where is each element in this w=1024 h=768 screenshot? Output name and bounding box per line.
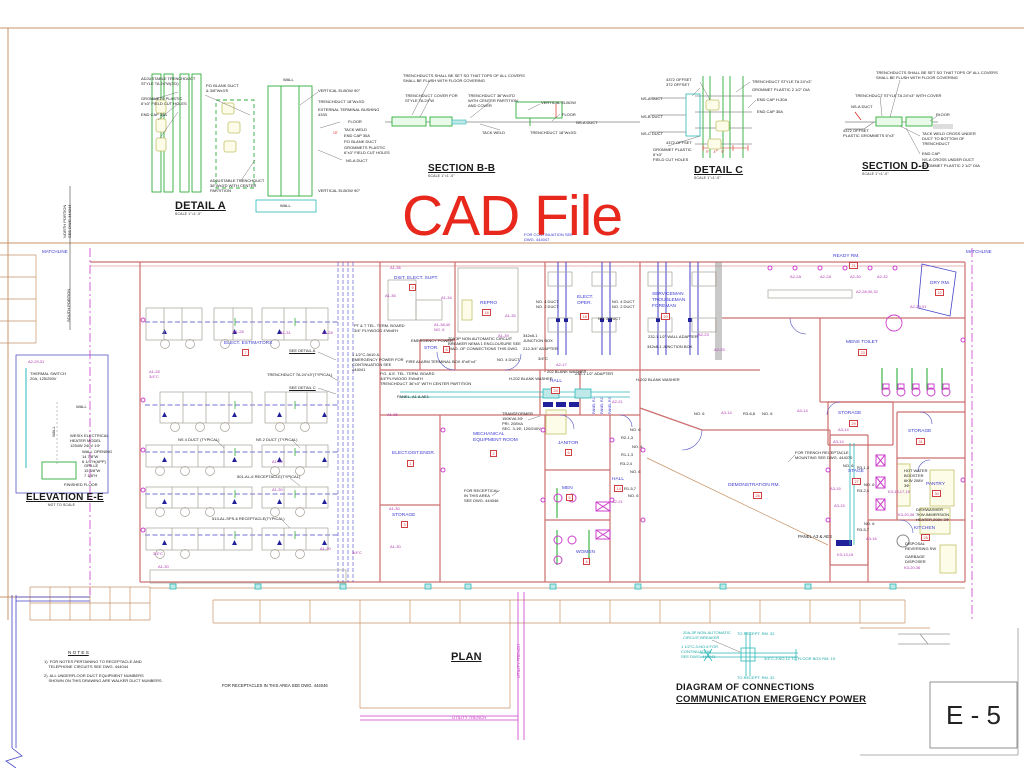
- section-title: DIAGRAM OF CONNECTIONS: [676, 682, 814, 694]
- annotation: GROMMETS PLASTIC 6"x3" FIELD CUT HOLES: [344, 145, 390, 155]
- annotation: GROMMET PLASTIC 6"x3" FIELD CUT HOLES: [653, 147, 692, 162]
- annotation: A3-14: [833, 439, 844, 444]
- annotation: FLOOR: [936, 112, 950, 117]
- room-number-tag: 5: [566, 494, 573, 501]
- annotation: DISHWASHER 7KW-IMMERSION HEATER,208V 3Φ: [916, 507, 949, 522]
- annotation: PANEL R1: [592, 397, 596, 414]
- room-number-tag: 1: [407, 460, 414, 467]
- annotation: NS-B DUCT: [641, 114, 663, 119]
- room-label: MECHANICAL EQUIPMENT ROOM: [473, 432, 518, 444]
- annotation: A1-35: [387, 412, 398, 417]
- section-title: COMMUNICATION EMERGENCY POWER: [676, 694, 866, 706]
- room-number-tag: 9: [409, 284, 416, 291]
- annotation: A1-35: [505, 313, 516, 318]
- annotation: NS 4 DUCT (TYPICAL): [178, 437, 220, 442]
- annotation: GROMMET PLASTIC 2 1/2" DIA: [922, 163, 980, 168]
- annotation: A1-30: [272, 487, 283, 492]
- annotation: END CAP 30A: [344, 133, 370, 138]
- annotation: 1 1/2"C-3#10 & EMERGENCY POWER FOR CONTI…: [352, 352, 404, 372]
- annotation: NS-C DUCT: [641, 131, 663, 136]
- room-label: READY RM.: [833, 254, 860, 260]
- annotation: SEE DETAIL C: [289, 385, 316, 390]
- annotation: A2-23: [698, 332, 709, 337]
- annotation: NO. 6: [762, 411, 772, 416]
- annotation: TRENCHDUCT COVER FOR STYLE TA 24"W: [405, 93, 458, 103]
- annotation: A1-28: [233, 329, 244, 334]
- room-number-tag: 6: [565, 449, 572, 456]
- annotation: TRANSFORMER 150KVA 3Φ PRI. 208VΔ SEC. 3-…: [502, 411, 541, 431]
- annotation: ADJUSTABLE TRENCHDUCT 36"Wx3'D WITH CENT…: [210, 178, 264, 193]
- room-label: MENS TOILET: [846, 340, 878, 346]
- annotation: MATCHLINE: [966, 249, 992, 255]
- annotation: P.G. & E. TEL. TERM. BOARD 3/4"PLYWOOD 3…: [380, 371, 471, 386]
- annotation: A2-25: [714, 347, 725, 352]
- annotation: PANEL, A1 & AE1: [397, 394, 429, 399]
- annotation: 3/4"C-3 NO.12 TO FLOOR BOX RM. 19: [764, 656, 835, 661]
- annotation: A3-14: [838, 427, 849, 432]
- annotation: P.D BLANK DUCT & 3/8"Wx3'S: [206, 83, 239, 93]
- annotation: TRENCHDUCT STYLE TA 24"x3" WITH COVER: [855, 93, 941, 98]
- annotation: A1-31: [280, 330, 291, 335]
- annotation: 513-AL-SPS-6 RECEPTACLE(TYPICAL): [212, 516, 285, 521]
- annotation: VERTICAL ELBOW 90°: [318, 88, 360, 93]
- annotation: TACK WELD CROSS UNDER DUCT TO BOTTOM OF …: [922, 131, 976, 146]
- annotation: GARBAGE DISPOSER: [905, 554, 926, 564]
- annotation: NS 2 DUCT (TYPICAL): [256, 437, 298, 442]
- annotation: A1-38,40 NO. 6: [434, 322, 450, 332]
- annotation: 1) FOR NOTES PERTAINING TO RECEPTACLE AN…: [44, 659, 142, 669]
- annotation: FINISHED FLOOR: [64, 482, 98, 487]
- annotation: END CAP H-30A: [757, 97, 787, 102]
- trench-lines: [26, 200, 896, 676]
- annotation: WESIX ELECTRICAL HEATER MODEL 1254W 240V…: [70, 433, 109, 448]
- annotation: A1-30: [272, 459, 283, 464]
- annotation: A1-28 3/4"C: [149, 369, 160, 379]
- room-label: HALL: [550, 379, 562, 385]
- room-number-tag: 24: [551, 387, 560, 394]
- annotation: FOR TRENCH RECEPTACLE MOUNTING SEE DWG. …: [795, 450, 852, 460]
- annotation: A2-29,31: [910, 304, 926, 309]
- section-title: SCALE 1"=1'-0": [694, 176, 721, 180]
- annotation: NS-A DUCT: [851, 104, 873, 109]
- annotation: H-202 BLANK WASHER: [636, 377, 680, 382]
- room-number-tag: 28: [921, 534, 930, 541]
- room-number-tag: 4: [583, 558, 590, 565]
- section-title: SCALE 1"=1'-0": [862, 172, 889, 176]
- annotation: A3-16: [866, 536, 877, 541]
- annotation: SEE DETAIL A: [289, 348, 315, 353]
- room-number-tag: 23: [858, 349, 867, 356]
- annotation: 4372 OFFSET 372 OFFSET: [666, 77, 692, 87]
- annotation: END CAP 30A: [141, 112, 167, 117]
- annotation: A2-2A: [820, 274, 831, 279]
- room-number-tag: 21: [849, 262, 858, 269]
- annotation: A2-17: [556, 362, 567, 367]
- annotation: 232-1 1/2" WALL ADAPTER: [648, 334, 698, 339]
- annotation: 9" 4" 9": [706, 150, 724, 154]
- room-number-tag: 7: [242, 349, 249, 356]
- annotation: TRENCHDUCTS SHALL BE SET SO THAT TOPS OF…: [403, 73, 525, 83]
- annotation: 1 1/2"C-3-NO.6 FOR CONTINUATION SEE DWG.…: [681, 644, 718, 659]
- section-title: NOT TO SCALE: [48, 503, 75, 507]
- annotation: NS-A DUCT: [641, 96, 663, 101]
- room-label: STORAGE: [908, 429, 931, 435]
- annotation: NORTH PORTION SEE DWG.444044: [62, 205, 72, 238]
- annotation: A3-15: [834, 503, 845, 508]
- annotation: TRENCHDUCT 18"Wx3'D: [318, 99, 364, 104]
- annotation: A1-34: [441, 295, 452, 300]
- room-label: DRY RM.: [930, 281, 950, 287]
- annotation: 20A-3P NON-AUTOMATIC CIRCUIT BREAKER: [683, 630, 731, 640]
- annotation: A3-14: [797, 408, 808, 413]
- room-number-tag: 3: [401, 521, 408, 528]
- annotation: 4372 OFFSET PLASTIC GROMMETS 6"x3": [843, 128, 895, 138]
- annotation: TRENCHDUCT STYLE TA 24"x3": [752, 79, 812, 84]
- annotation: PANEL A3 & AE3: [798, 534, 832, 540]
- annotation: A2-2A: [790, 274, 801, 279]
- room-label: REPRO: [480, 301, 497, 307]
- room-label: WOMEN: [576, 550, 595, 556]
- annotation: NS-A DUCT: [576, 120, 598, 125]
- room-label: STOR.: [424, 346, 439, 352]
- annotation: NS-A DUCT: [346, 158, 368, 163]
- annotation: 2) ALL UNDERFLOOR DUCT EQUIPMENT NUMBERS…: [44, 673, 163, 683]
- annotation: R3-2,4: [857, 488, 869, 493]
- annotation: PANEL R3: [608, 397, 612, 414]
- annotation: PT & T TEL. TERM. BOARD 3/4" PLYWOOD 4'W…: [354, 323, 405, 333]
- annotation: A2-21: [612, 499, 623, 504]
- room-label: PANTRY: [926, 482, 945, 488]
- annotation: A1-30: [158, 564, 169, 569]
- annotation: 342x8-1 JUNCTION BOX: [647, 344, 692, 349]
- detail-c-drawing: [650, 76, 752, 158]
- annotation: WALL: [51, 426, 56, 437]
- annotation: 342x8-1 JUNCTION BOX: [523, 333, 553, 343]
- annotation: NS-A CROSS UNDER DUCT: [922, 157, 974, 162]
- annotation: TRENCHDUCT 18"Wx3'D: [530, 130, 576, 135]
- section-title: SCALE 1"=1'-0": [175, 212, 202, 216]
- annotation: K3-20,36: [904, 565, 920, 570]
- annotation: A1-30: [320, 546, 331, 551]
- annotation: SOUTH PORTION: [66, 289, 71, 322]
- room-number-tag: 18: [580, 313, 589, 320]
- annotation: R1-5,7: [624, 486, 636, 491]
- annotation: TRENCHDUCT TA 24"x3"(TYPICAL): [267, 372, 332, 377]
- annotation: K3-15,17,19: [888, 489, 910, 494]
- annotation: THERMAL SWITCH 20A, 125/250V: [30, 371, 66, 381]
- room-number-tag: 20: [661, 313, 670, 320]
- annotation: H-202 BLANK WASHER: [509, 376, 553, 381]
- room-label: STORAGE: [838, 411, 861, 417]
- annotation: R2-1,3: [621, 435, 633, 440]
- annotation: MATCHLINE: [42, 249, 68, 255]
- room-number-tag: 27: [852, 478, 861, 485]
- annotation: N O T E S: [68, 650, 89, 656]
- annotation: EMERGENCY POWER: [411, 338, 453, 343]
- annotation: NO. 4 DUCT NO. 2 DUCT: [612, 299, 635, 309]
- annotation: NO. 6: [694, 411, 704, 416]
- annotation: K3-13,15: [837, 552, 853, 557]
- annotation: A1-28: [322, 330, 333, 335]
- room-label: KITCHEN: [914, 526, 935, 532]
- room-number-tag: 14: [614, 485, 623, 492]
- annotation: NO. 6: [628, 493, 638, 498]
- room-number-tag: 29: [849, 420, 858, 427]
- annotation: A3-14: [721, 410, 732, 415]
- sheet-number: E - 5: [930, 682, 1017, 748]
- watermark-text: CAD File: [402, 188, 622, 245]
- annotation: 3/4"C: [352, 550, 362, 555]
- annotation: NO. 6: [843, 463, 853, 468]
- annotation: 3/4"C: [153, 551, 163, 556]
- annotation: 232-1 1/2" ADAPTER: [575, 371, 613, 376]
- room-number-tag: 30: [932, 490, 941, 497]
- annotation: EXTERNAL TERMINAL BUSHING 4333: [318, 107, 379, 117]
- annotation: TO RECEPT. RM. 32: [737, 675, 775, 680]
- annotation: VERTICAL ELBOW 90°: [318, 188, 360, 193]
- room-number-tag: 2: [490, 450, 497, 457]
- annotation: A1-36: [390, 265, 401, 270]
- room-label: MEN: [562, 486, 573, 492]
- room-label: ELECT. OPER.: [577, 295, 593, 307]
- annotation: TACK WELD: [482, 130, 505, 135]
- annotation: NO. 4 DUCT NO. 2 DUCT: [536, 299, 559, 309]
- annotation: UTILITY TRENCH: [452, 715, 486, 720]
- room-label: JANITOR: [558, 441, 578, 447]
- annotation: WALL: [280, 203, 291, 208]
- room-label: ELECT.DIST.ENGR.: [392, 451, 435, 457]
- annotation: A2-21: [612, 399, 623, 404]
- room-number-tag: 26: [753, 492, 762, 499]
- annotation: 501-AL-6 RECEPTACLE(TYPICAL): [237, 474, 300, 479]
- annotation: NO. 6: [864, 482, 874, 487]
- annotation: R3-2,4: [620, 461, 632, 466]
- annotation: TRENCHDUCT 36"Wx3"D WITH CENTER PARTITIO…: [468, 93, 518, 108]
- room-label: STAGE: [848, 469, 864, 475]
- annotation: HOT WATER BOOSTER 6KW 208V 3Φ: [904, 468, 927, 488]
- annotation: WALL: [76, 404, 87, 409]
- annotation: 20A 3P NON AUTOMATIC CIRCUIT BREAKER NEM…: [448, 336, 521, 351]
- room-number-tag: 22: [935, 289, 944, 296]
- annotation: UTILITY TRENCH: [516, 644, 521, 678]
- annotation: FLOOR: [348, 119, 362, 124]
- room-number-tag: 8: [443, 346, 450, 353]
- annotation: 4372 OFFSET: [666, 140, 692, 145]
- annotation: VERTICAL ELBOW: [541, 100, 576, 105]
- annotation: ADJUSTABLE TRENCHDUCT STYLE TA 24"W(3'D): [141, 76, 195, 86]
- annotation: FIRE ALARM TERMINAL BOX 8"x8"x4": [406, 359, 477, 364]
- annotation: END CAP: [922, 151, 940, 156]
- annotation: A2-29,31: [28, 359, 44, 364]
- annotation: TRENCHDUCTS SHALL BE SET SO THAT TOPS OF…: [876, 70, 998, 80]
- annotation: 15": [333, 131, 338, 135]
- annotation: FOR RECEPTICAL IN THIS AREA SEE DWG. 444…: [464, 488, 499, 503]
- annotation: NO. 6: [864, 521, 874, 526]
- annotation: TACK WELD: [344, 127, 367, 132]
- annotation: K3-20,36: [898, 512, 914, 517]
- annotation: A2-28,30,32: [856, 289, 878, 294]
- annotation: GROMMET PLASTIC 2 1/2" DIA: [752, 87, 810, 92]
- annotation: FLOOR: [562, 112, 576, 117]
- annotation: R3-5,7: [857, 527, 869, 532]
- annotation: WALL OPENING 14 7/8"W 6 1/4"H(APP): [82, 449, 112, 464]
- annotation: A1-30: [390, 544, 401, 549]
- annotation: GRILLE 15 5/8"W 7 1/8"H: [84, 463, 100, 478]
- annotation: NO. 4: [632, 444, 642, 449]
- annotation: FOR RECEPTACLES IN THIS AREA SEE DWG. 44…: [222, 683, 328, 688]
- annotation: P.D BLANK DUCT: [344, 139, 377, 144]
- room-label: HALL: [612, 477, 624, 483]
- annotation: A3-15: [830, 486, 841, 491]
- annotation: GROMMETS PLASTIC 6"x3" FIELD CUT HOLES: [141, 96, 187, 106]
- annotation: NO. 2 DUCT: [598, 316, 621, 321]
- annotation: R1-1,3: [621, 452, 633, 457]
- section-title: SCALE 1"=1'-0": [428, 174, 455, 178]
- room-label: DEMONSTRATION RM.: [728, 483, 780, 489]
- annotation: R3-6,8: [743, 411, 755, 416]
- annotation: NO. 4 DUCT: [497, 357, 520, 362]
- room-label: ELECT. ESTIMATORS: [224, 341, 272, 347]
- annotation: A2-32: [877, 274, 888, 279]
- room-number-tag: 31: [916, 438, 925, 445]
- annotation: A1-36: [385, 293, 396, 298]
- annotation: NO. 6: [630, 469, 640, 474]
- room-label: SERVICEMAN TROUBLEMAN FOREMAN: [652, 292, 685, 310]
- cad-sheet: CAD File E - 5 DETAIL ASCALE 1"=1'-0"SEC…: [0, 0, 1024, 768]
- annotation: END CAP 30A: [757, 109, 783, 114]
- leader-lines: [152, 80, 940, 652]
- annotation: TO RECEPT. RM. 32: [737, 631, 775, 636]
- room-label: STORAGE: [392, 513, 415, 519]
- annotation: A2-30: [850, 274, 861, 279]
- annotation: PANEL R2: [600, 397, 604, 414]
- annotation: WALL: [283, 77, 294, 82]
- room-label: DIST. ELECT. SUPT.: [394, 276, 438, 282]
- annotation: 212-3/4" ADAPTER: [523, 346, 558, 351]
- annotation: 3/4"C: [538, 356, 548, 361]
- annotation: DISPOSAL REVERSING SW: [905, 541, 936, 551]
- room-number-tag: 16: [482, 309, 491, 316]
- annotation: A1-30: [389, 506, 400, 511]
- annotation: NO. 6: [630, 427, 640, 432]
- section-title: PLAN: [451, 651, 482, 665]
